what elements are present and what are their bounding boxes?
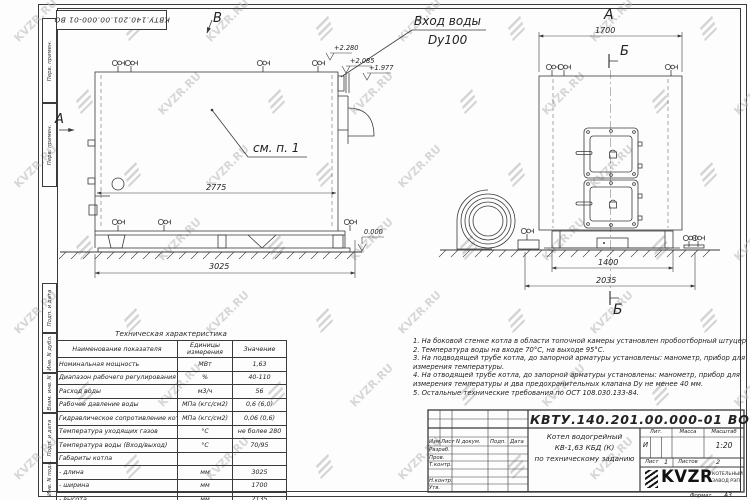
titleblock-doc-number: КВТУ.140.201.00.000-01 ВО [530,412,743,427]
ground-hatch [59,252,66,259]
frame-cell-inv-dubl: Инв. N дубл. [42,333,57,373]
tb-col-izm: Изм. [429,439,441,445]
tb-scale-label: Масштаб [704,429,744,435]
dim-1700: 1700 [595,26,615,35]
frame-cell-podp-data-2: Подп. и дата [42,413,57,463]
spec-table-row: Гидравлическое сопротивление котлаМПа (к… [57,412,287,426]
spec-table-cell: Температура уходящих газов [57,425,178,439]
note-line: 3. На подводящей трубе котла, до запорно… [413,354,747,363]
notes: 1. На боковой стенке котла в области топ… [413,337,747,397]
elevation-0000: 0.000 [364,228,383,236]
format-value: А3 [724,492,732,499]
ground-hatch [463,250,470,257]
spec-table-row: Номинальная мощностьМВт1,63 [57,358,287,372]
elevation-marks [326,53,391,251]
ground-hatch [595,250,602,257]
spec-table-row: Температура уходящих газов°Сне более 280 [57,425,287,439]
ground-hatch [523,250,530,257]
frame-cell-inv-podl: Инв. N подл. [42,463,57,492]
spec-header-value: Значение [233,341,287,358]
spec-table-cell: Гидравлическое сопротивление котла [57,412,178,426]
ground-hatch [607,250,614,257]
ground-hatch [167,252,174,259]
ground-hatch [547,250,554,257]
spec-table-cell: Рабочее давление воды [57,398,178,412]
ground-hatch [679,250,686,257]
ground-hatch [191,252,198,259]
ground-hatch [251,252,258,259]
frame-cell-podp-data-1: Подп. и дата [42,283,57,333]
spec-table-row: - ширинамм1700 [57,479,287,493]
spec-table-cell: 1700 [233,479,287,493]
spec-table-row: - высотамм2135 [57,493,287,500]
ground-hatch [643,250,650,257]
ground-hatch [263,252,270,259]
frame-label: Перв. примен. [47,40,53,80]
spec-table-row: - длинамм3025 [57,466,287,480]
ground-hatch [131,252,138,259]
ground-hatch [335,252,342,259]
inlet-dn-label: Dy100 [428,33,467,47]
tb-sheets-label: Листов [678,459,698,465]
spec-table-cell: % [178,371,233,385]
ground-hatch [155,252,162,259]
spec-header-units: Единицы измерения [178,341,233,358]
elevation-1977: +1.977 [369,64,393,72]
frame-label: Инв. N дубл. [47,335,53,370]
spec-table-cell: 40-110 [233,371,287,385]
spec-table-cell [178,452,233,466]
spec-table-cell: °С [178,425,233,439]
doc-number-box: КВТУ.140.201.00.000-01 ВО [56,10,167,30]
ground-hatch [535,250,542,257]
ground-hatch [583,250,590,257]
ground-hatch [239,252,246,259]
view-a-arrow-label: А [55,112,64,127]
spec-table-title: Техническая характеристика [56,329,286,338]
tb-sheet-value: 1 [664,458,668,466]
ground-hatch [439,250,446,257]
ground-hatch [299,252,306,259]
ground-hatch [631,250,638,257]
ground-hatch [571,250,578,257]
spec-table-cell: - длина [57,466,178,480]
ground-hatch [499,250,506,257]
note-line: 1. На боковой стенке котла в области топ… [413,337,747,346]
ground-hatch [107,252,114,259]
fan-front-view [457,190,539,249]
spec-table-cell: 2135 [233,493,287,500]
ground-hatch [451,250,458,257]
section-b-bottom-label: Б [613,302,623,318]
spec-table-cell: 56 [233,385,287,399]
ground-hatch [143,252,150,259]
kvzr-logo-text: KVZR [661,467,713,486]
tb-lit-label: Лит. [640,429,672,435]
product-name-line1: Котел водогрейный [529,432,640,441]
spec-header-name: Наименование показателя [57,341,178,358]
dim-2775: 2775 [206,183,226,192]
ground-hatch [619,250,626,257]
frame-label: Взам. инв. N [47,375,53,410]
spec-table-cell: Расход воды [57,385,178,399]
fan-side-view [338,96,374,144]
ground-hatch [83,252,90,259]
drawing-sheet: KVZR.RUKVZR.RUKVZR.RUKVZR.RUKVZR.RUKVZR.… [0,0,750,500]
spec-table-body: Номинальная мощностьМВт1,63Диапазон рабо… [57,358,287,500]
kvzr-coil-icon [645,470,658,488]
tb-row-razrab: Разраб. [429,447,450,453]
note-line: измерения температуры и два предохраните… [413,380,747,389]
ground-hatch [511,250,518,257]
frame-label: Инв. N подл. [47,460,53,496]
note-line: 5. Остальные технические требования по О… [413,389,747,398]
spec-table-cell: Габариты котла [57,452,178,466]
ground-hatch [203,252,210,259]
tb-lit-value: И [640,441,651,449]
spec-table-row: Габариты котла [57,452,287,466]
spec-table-cell: 3025 [233,466,287,480]
spec-table-row: Расход водым3/ч56 [57,385,287,399]
spec-table-cell: 0,06 (0,6) [233,412,287,426]
product-name-line3: по техническому заданию [529,454,640,463]
ground-hatch [487,250,494,257]
ground-hatch [71,252,78,259]
spec-table-cell: мм [178,493,233,500]
tb-col-list: Лист [441,439,454,445]
tb-col-data: Дата [510,439,524,445]
company-line1: КОТЕЛЬНЫЙ [712,472,743,477]
spec-table-cell: МПа (кгс/см2) [178,398,233,412]
ground-hatch [559,250,566,257]
ground-hatch [119,252,126,259]
spec-table-cell: 0,6 (6,0) [233,398,287,412]
doc-number-rotated: КВТУ.140.201.00.000-01 ВО [54,16,170,25]
spec-table-cell [233,452,287,466]
dim-2035: 2035 [596,276,616,285]
ground-hatch [215,252,222,259]
inlet-label: Вход воды [414,14,481,28]
spec-table-cell: - ширина [57,479,178,493]
dim-1400: 1400 [598,258,618,267]
tb-row-nkontr: Н.контр. [429,478,453,484]
ground-hatch [287,252,294,259]
section-b-top-label: Б [620,44,629,59]
note-line: измерения температуры. [413,363,747,372]
company-line2: ЗАВОД РЭП [712,479,740,484]
spec-table-cell: 70/95 [233,439,287,453]
ground-hatch [311,252,318,259]
spec-table-cell: - высота [57,493,178,500]
spec-table-cell: не более 280 [233,425,287,439]
note-line: 2. Температура воды на входе 70°С, на вы… [413,346,747,355]
tb-sheet-label: Лист [645,459,658,465]
spec-table-row: Рабочее давление водыМПа (кгс/см2)0,6 (6… [57,398,287,412]
ground-hatch [347,252,354,259]
spec-table-row: Температура воды (Вход/выход)°С70/95 [57,439,287,453]
spec-table-cell: МПа (кгс/см2) [178,412,233,426]
tb-col-podp: Подп. [490,439,506,445]
elevation-2280: +2.280 [334,44,358,52]
spec-table-section: Техническая характеристика Наименование … [56,329,286,500]
lower-door [576,180,642,228]
view-b-label: В [213,11,222,26]
right-view [440,32,720,305]
spec-table-cell: 1,63 [233,358,287,372]
spec-table: Наименование показателя Единицы измерени… [56,340,287,500]
ground-hatch [227,252,234,259]
spec-table-row: Диапазон рабочего регулирования%40-110 [57,371,287,385]
see-note-label: см. п. 1 [253,141,299,155]
tb-row-tkontr: Т.контр. [429,462,452,468]
spec-table-cell: °С [178,439,233,453]
ground-hatch [691,250,698,257]
frame-cell-vzam-inv: Взам. инв. N [42,373,57,413]
ground-hatch [179,252,186,259]
ground-hatch [323,252,330,259]
frame-cell-perv-primen-1: Перв. примен. [42,18,57,103]
tb-sheets-value: 2 [716,458,720,466]
frame-label: Подп. и дата [47,420,53,457]
spec-table-cell: Номинальная мощность [57,358,178,372]
ground-hatch [95,252,102,259]
upper-door [576,128,642,178]
format-label: Формат [690,493,712,499]
spec-table-cell: м3/ч [178,385,233,399]
tb-mass-label: Масса [672,429,704,435]
tb-row-utv: Утв. [429,485,440,491]
frame-label: Перв. примен. [47,125,53,165]
ground-hatch [275,252,282,259]
tb-col-ndoc: N докум. [456,439,481,445]
spec-header-row: Наименование показателя Единицы измерени… [57,341,287,358]
spec-table-cell: мм [178,466,233,480]
spec-table-cell: Температура воды (Вход/выход) [57,439,178,453]
spec-table-cell: МВт [178,358,233,372]
ground-hatch [475,250,482,257]
spec-table-cell: мм [178,479,233,493]
ground-hatch [703,250,710,257]
frame-label: Подп. и дата [47,290,53,327]
note-line: 4. На отводящей трубе котла, до запорной… [413,371,747,380]
tb-scale-value: 1:20 [704,441,744,450]
product-name-line2: КВ-1,63 КБД (К) [529,443,640,452]
tb-row-prov: Пров. [429,455,444,461]
view-a-title: А [604,7,614,23]
dim-3025: 3025 [209,262,229,271]
spec-table-cell: Диапазон рабочего регулирования [57,371,178,385]
ground-hatch [655,250,662,257]
